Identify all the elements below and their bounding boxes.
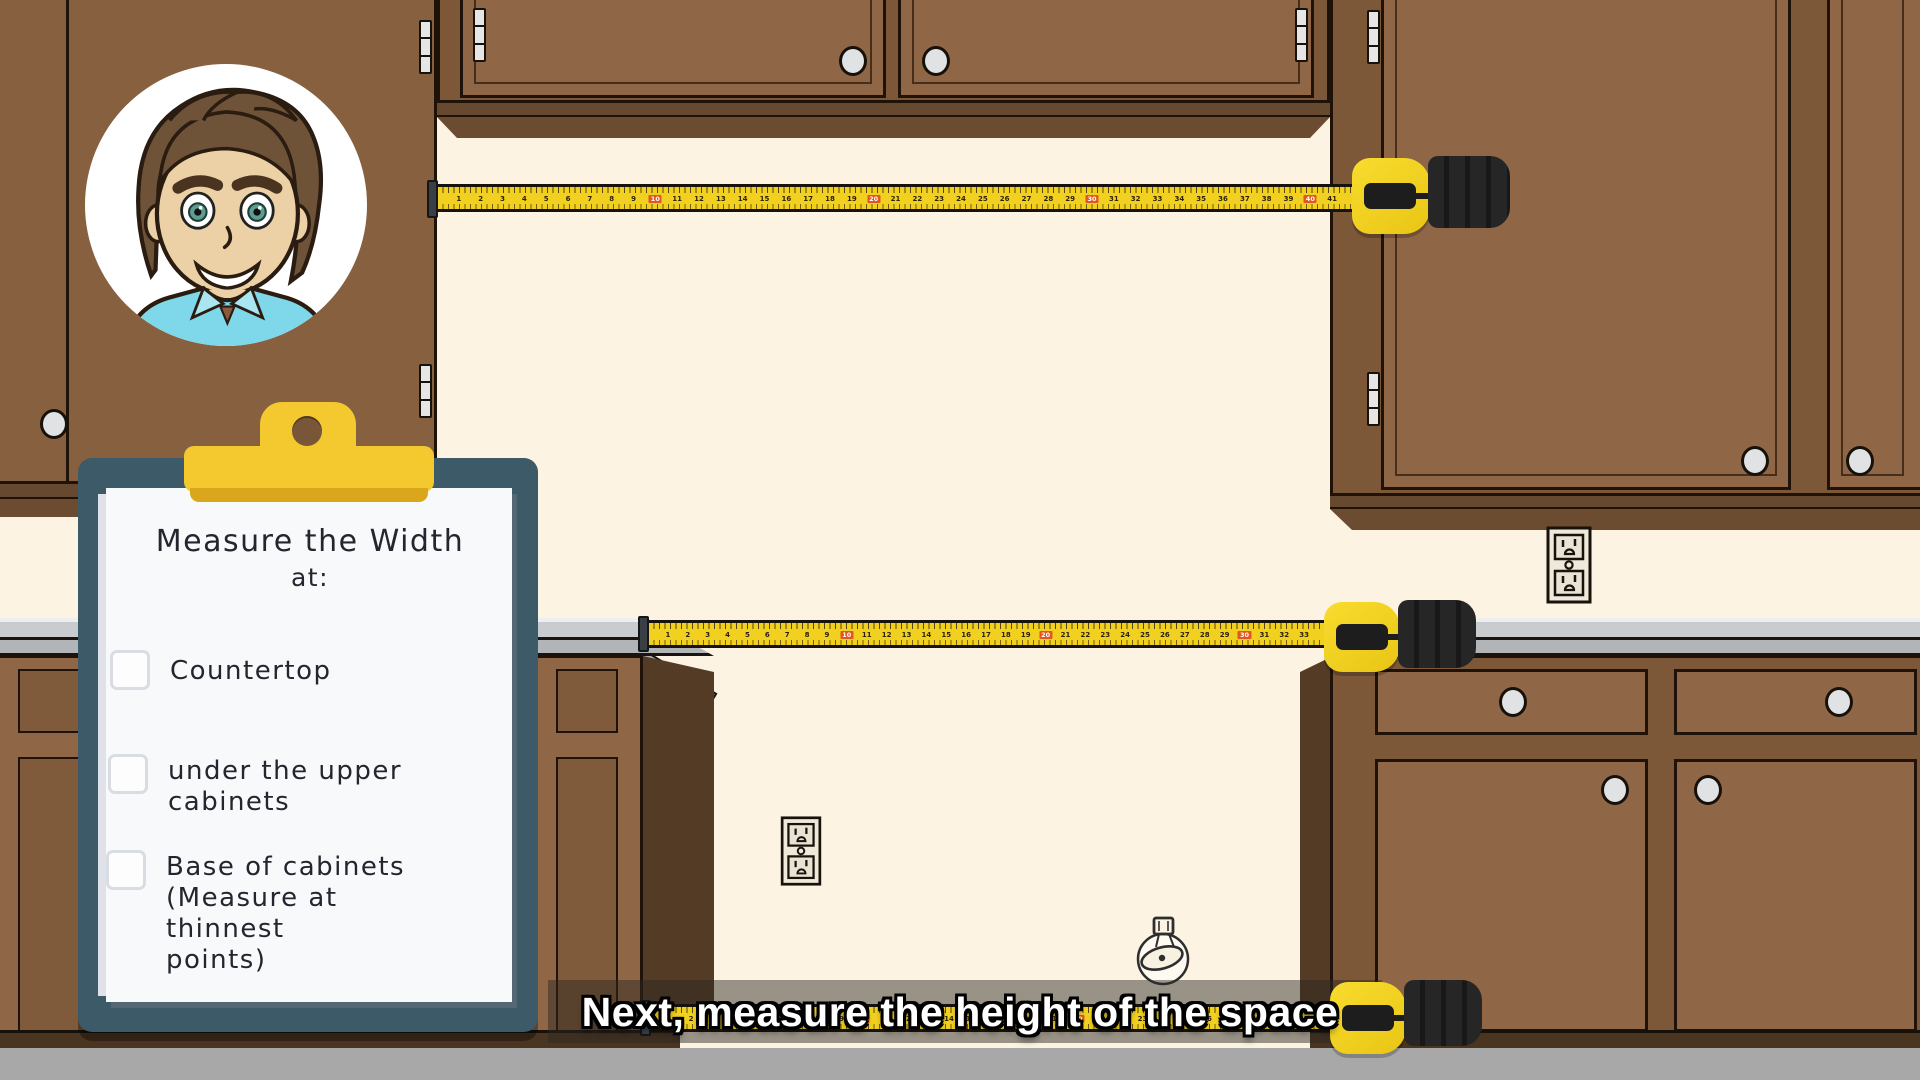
tape-clip [1342,1005,1394,1031]
presenter-avatar [85,64,367,346]
clipboard-clip-shadow [190,488,428,502]
door-recess [912,0,1300,84]
cabinet-door [460,0,886,98]
hinge-icon [1367,10,1380,64]
tape-measure-sketch-icon [1132,916,1194,986]
checklist-item-label: Countertop [170,656,500,687]
hinge-icon [419,364,432,418]
cabinet-door [1381,0,1791,490]
tape-measure-blade-counter: 1234567891011121314151617181920212223242… [648,620,1324,648]
door-recess [1395,0,1777,476]
tape-measure-body [1352,158,1430,234]
lower-left-cabinet-side [643,656,714,1030]
power-outlet-icon [774,816,828,886]
checklist-item-label: under the upper cabinets [168,756,468,818]
power-outlet-icon [1546,526,1592,604]
drawer-panel [556,669,618,733]
tape-hook-icon [638,616,649,652]
door-recess [1841,0,1904,476]
tape-measure-body [1324,602,1400,672]
tape-hook-icon [427,180,438,218]
kitchen-measuring-scene: 1234567891011121314151617181920212223242… [0,0,1920,1080]
cabinet-knob [1741,446,1769,476]
tape-clip [1336,624,1388,650]
cabinet-knob [922,46,950,76]
cabinet-door [898,0,1314,98]
upper-right-cabinet-molding [1330,509,1920,530]
hinge-icon [1295,8,1308,62]
checklist-item-countertop: Countertop [110,650,500,690]
checklist-item-note: (Measure at thinnest points) [166,883,381,976]
checklist-heading: Measure the Width at: [128,524,492,596]
tape-scale-numbers: 1234567891011121314151617181920212223242… [648,623,1324,645]
cabinet-knob [839,46,867,76]
checkbox[interactable] [108,754,148,794]
clipboard-clip-hole [292,416,322,446]
checklist-item-label: Base of cabinets [166,852,405,883]
clipboard-clip [184,446,434,492]
tape-clip [1364,183,1416,209]
tape-measure-body [1330,982,1406,1054]
hinge-icon [419,20,432,74]
tape-measure-back [1428,156,1510,228]
checklist-heading-line1: Measure the Width [128,524,492,560]
cabinet-door [1827,0,1920,490]
drawer-front [1674,669,1917,735]
door-knob [1601,775,1629,805]
hinge-icon [473,8,486,62]
subtitle-caption: Next, measure the height of the space [582,989,1339,1036]
cabinet-knob [40,409,68,439]
floor [0,1048,1920,1080]
checklist-item-base-of-cabinets: Base of cabinets (Measure at thinnest po… [106,850,405,976]
checklist-item-under-upper-cabinets: under the upper cabinets [108,754,468,818]
checkbox[interactable] [110,650,150,690]
door-knob [1694,775,1722,805]
upper-middle-cabinet-molding [437,117,1330,138]
door-recess [474,0,872,84]
cartoon-man-icon [85,64,367,346]
checkbox[interactable] [106,850,146,890]
drawer-knob [1499,687,1527,717]
drawer-knob [1825,687,1853,717]
upper-middle-cabinet [437,0,1330,100]
cabinet-door-seam [66,0,69,481]
hinge-icon [1367,372,1380,426]
tape-measure-back [1398,600,1476,668]
lower-right-cabinet [1330,656,1920,1030]
lower-right-cabinet-side [1300,656,1333,1030]
upper-right-cabinet [1330,0,1920,493]
tape-scale-numbers: 1234567891011121314151617181920212223242… [437,187,1354,209]
checklist-heading-line2: at: [128,560,492,596]
tape-measure-blade-upper: 1234567891011121314151617181920212223242… [437,184,1354,212]
cabinet-knob [1846,446,1874,476]
upper-right-cabinet-rail [1330,493,1920,509]
tape-measure-back [1404,980,1482,1046]
upper-middle-cabinet-rail [437,100,1330,117]
